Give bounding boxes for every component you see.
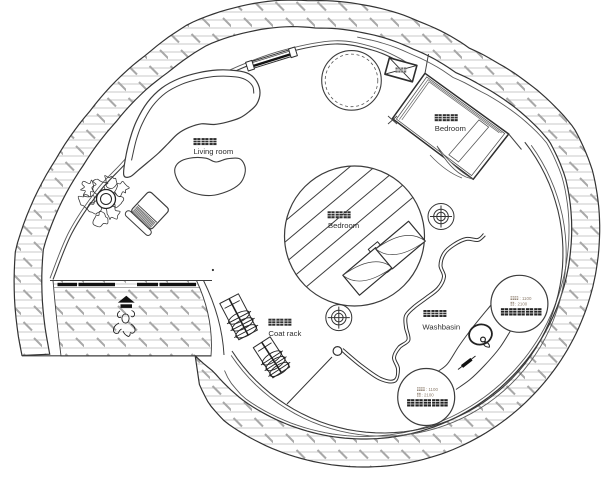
svg-text:Living room: Living room [194,147,234,156]
svg-text:Bedroom: Bedroom [435,124,466,133]
svg-text:: 1100: : 1100 [426,387,438,392]
svg-text:Coat rack: Coat rack [268,329,301,338]
svg-text:Washbasin: Washbasin [422,323,460,332]
svg-text:: 1100: : 1100 [520,296,532,301]
svg-text:Bedroom: Bedroom [328,221,359,230]
svg-text:: 2100: : 2100 [422,393,435,398]
svg-text:: 2100: : 2100 [515,302,528,307]
